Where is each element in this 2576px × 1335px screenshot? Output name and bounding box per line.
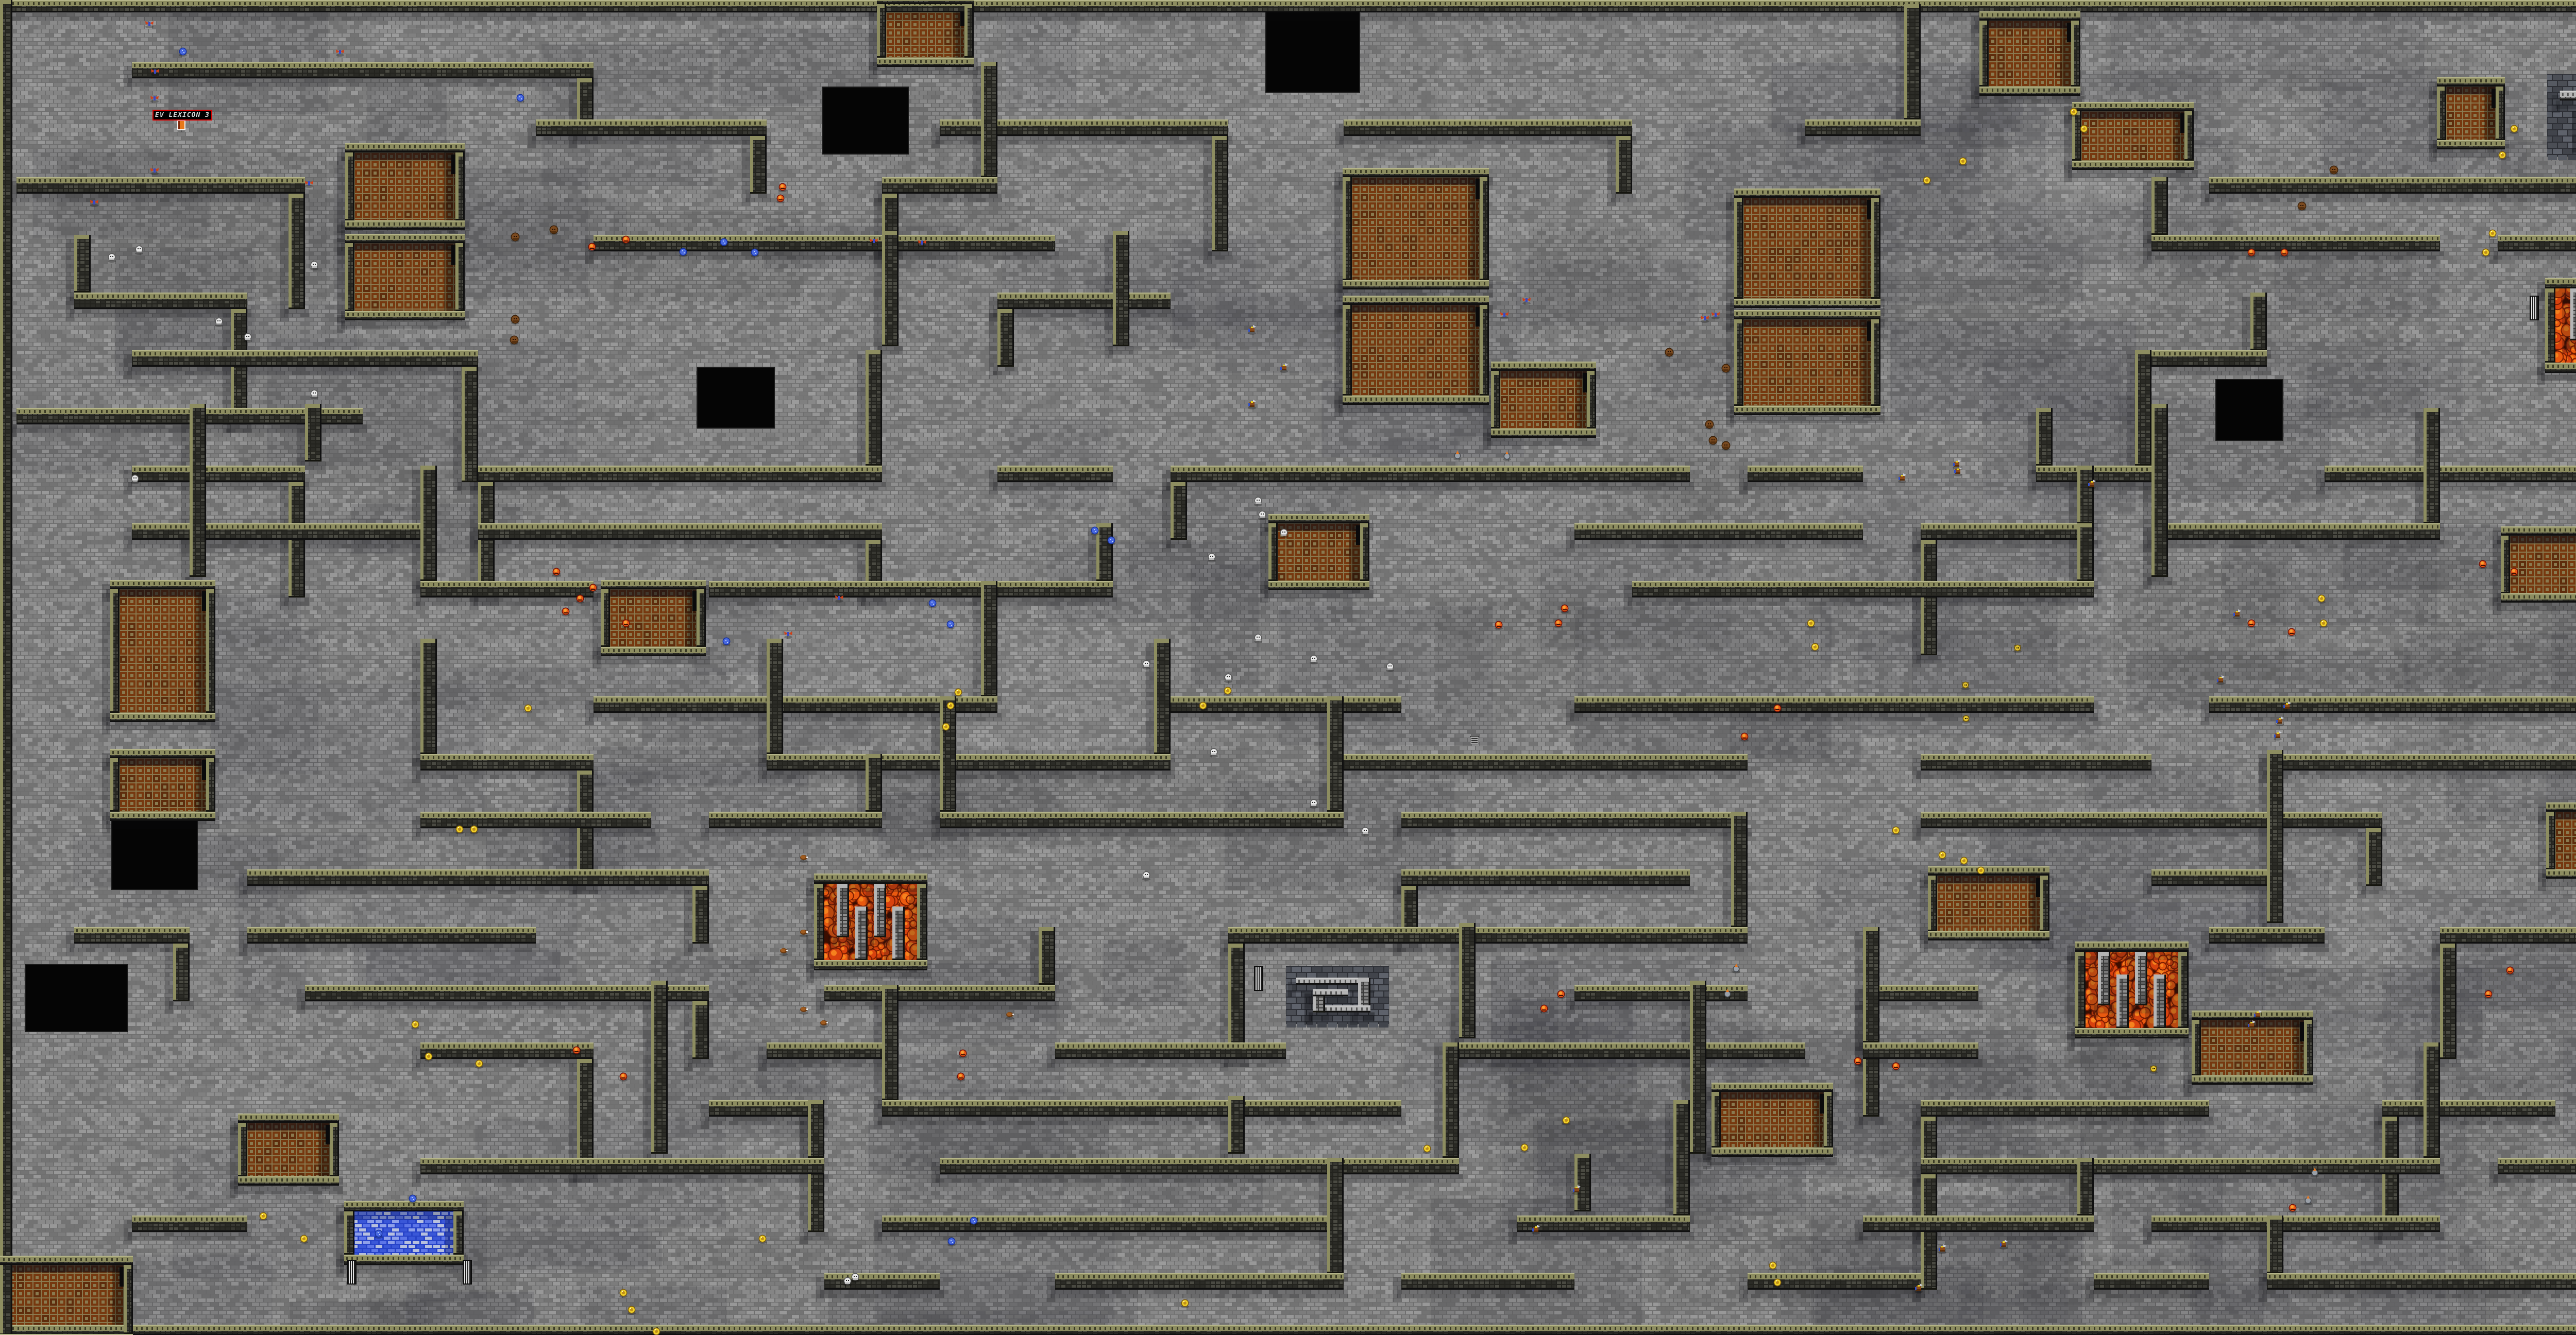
dungeon-map-canvas[interactable] [0,0,2576,1335]
item-label-sign-lexicon: EV LEXICON 3 [152,110,212,121]
dungeon-map-viewport: EV LEXICON 3 MOON CRYSTAL [0,0,2576,1335]
sign-text: EV LEXICON 3 [155,111,210,119]
